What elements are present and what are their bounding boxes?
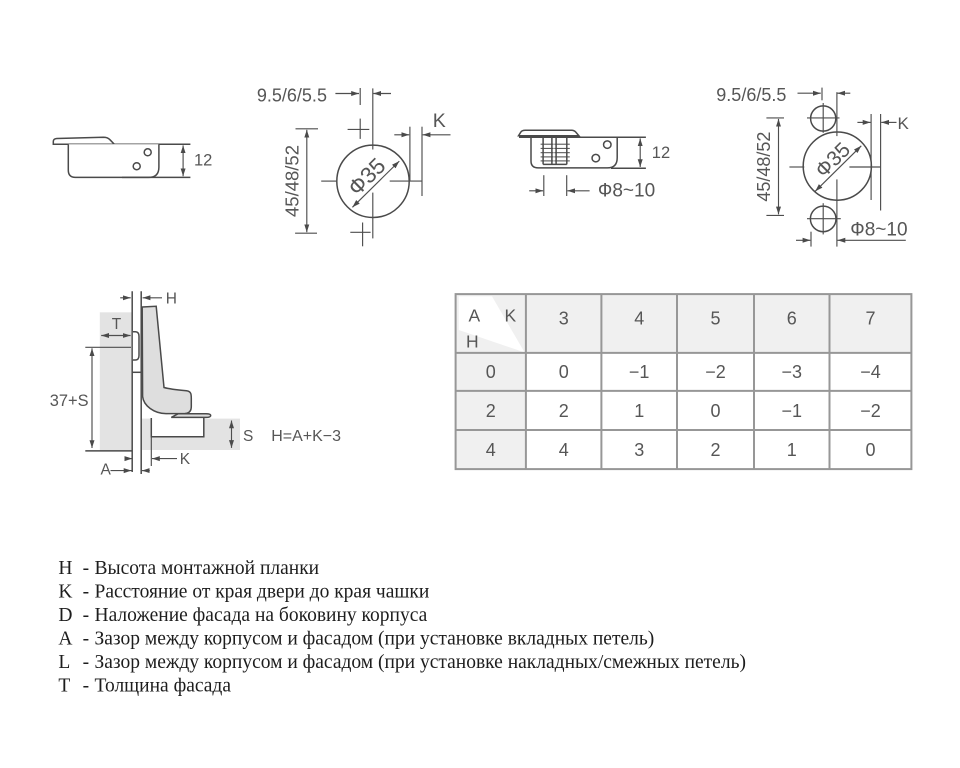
svg-text:H: H: [166, 290, 177, 307]
svg-text:H-Высота монтажной планки: H-Высота монтажной планки: [58, 558, 319, 579]
svg-text:−1: −1: [629, 362, 650, 382]
svg-text:4: 4: [559, 440, 569, 460]
svg-text:Ф8~10: Ф8~10: [598, 180, 655, 201]
svg-text:0: 0: [559, 362, 569, 382]
svg-text:0: 0: [486, 362, 496, 382]
svg-text:2: 2: [710, 440, 720, 460]
svg-text:37+S: 37+S: [50, 392, 89, 410]
svg-text:5: 5: [710, 309, 720, 329]
svg-text:1: 1: [634, 401, 644, 421]
svg-text:6: 6: [787, 309, 797, 329]
svg-text:12: 12: [652, 144, 670, 162]
svg-text:A: A: [101, 462, 112, 479]
svg-text:0: 0: [865, 440, 875, 460]
svg-text:9.5/6/5.5: 9.5/6/5.5: [716, 85, 786, 105]
svg-text:1: 1: [787, 440, 797, 460]
svg-text:7: 7: [865, 309, 875, 329]
svg-text:K: K: [180, 451, 191, 468]
svg-text:T-Толщина фасада: T-Толщина фасада: [58, 676, 231, 697]
svg-text:2: 2: [559, 401, 569, 421]
svg-text:H=A+K−3: H=A+K−3: [271, 428, 341, 445]
svg-text:45/48/52: 45/48/52: [281, 145, 302, 217]
svg-text:K-Расстояние от края двери до: K-Расстояние от края двери до края чашки: [58, 582, 429, 603]
svg-text:H: H: [466, 332, 479, 352]
svg-text:−4: −4: [860, 362, 881, 382]
svg-text:2: 2: [486, 401, 496, 421]
svg-text:S: S: [243, 428, 253, 445]
svg-text:K: K: [505, 306, 517, 326]
svg-text:−3: −3: [782, 362, 803, 382]
svg-text:3: 3: [634, 440, 644, 460]
svg-text:−2: −2: [705, 362, 726, 382]
svg-text:L-Зазор между корпусом и фасад: L-Зазор между корпусом и фасадом (при ус…: [58, 652, 746, 673]
svg-text:4: 4: [634, 309, 644, 329]
svg-text:K: K: [433, 110, 446, 132]
svg-text:Ф8~10: Ф8~10: [850, 219, 907, 240]
svg-text:0: 0: [710, 401, 720, 421]
svg-text:3: 3: [559, 309, 569, 329]
svg-text:K: K: [898, 114, 910, 133]
svg-text:−1: −1: [782, 401, 803, 421]
svg-text:4: 4: [486, 440, 496, 460]
svg-text:12: 12: [194, 152, 212, 170]
svg-text:D-Наложение фасада на боковину: D-Наложение фасада на боковину корпуса: [58, 605, 427, 626]
svg-text:−2: −2: [860, 401, 881, 421]
svg-text:T: T: [112, 316, 122, 333]
svg-text:9.5/6/5.5: 9.5/6/5.5: [257, 85, 327, 105]
svg-text:45/48/52: 45/48/52: [754, 132, 774, 202]
svg-text:A-Зазор между корпусом и фасад: A-Зазор между корпусом и фасадом (при ус…: [58, 629, 654, 650]
svg-text:A: A: [469, 306, 481, 326]
